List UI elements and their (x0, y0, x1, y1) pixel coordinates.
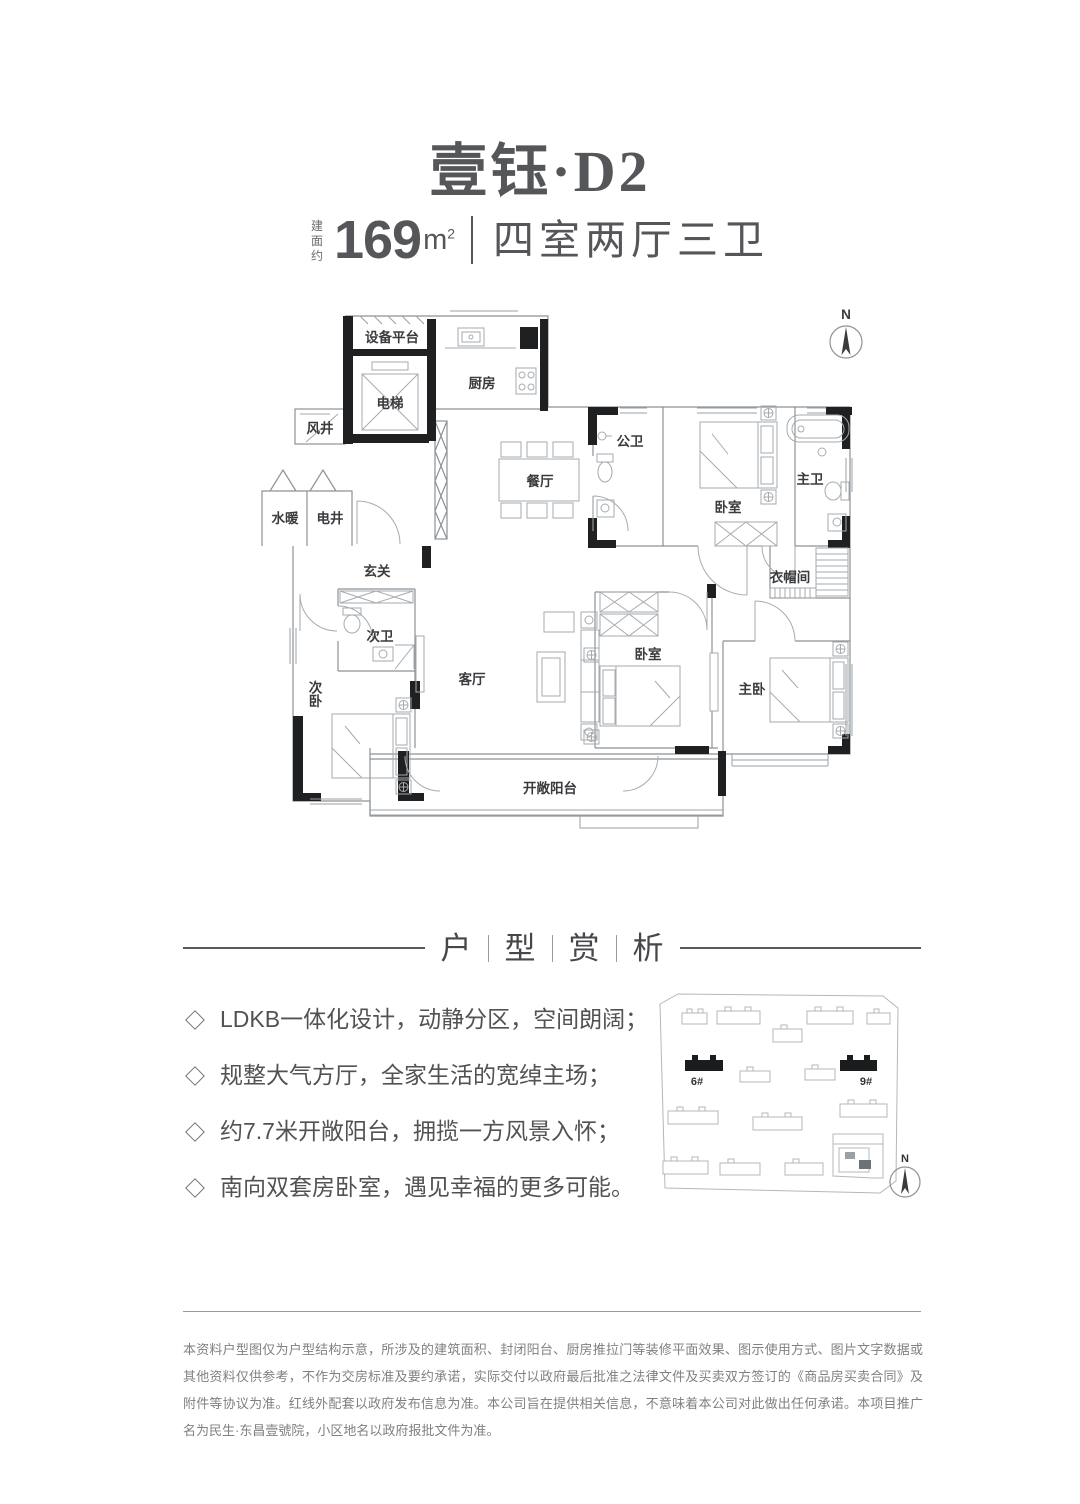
subtitle-divider (471, 216, 473, 264)
heading-char-3: 赏 (569, 933, 600, 964)
feature-list: LDKB一体化设计，动静分区，空间朗阔； 规整大气方厅，全家生活的宽绰主场； 约… (186, 1006, 672, 1230)
footer-divider (183, 1311, 921, 1312)
diamond-icon (185, 1010, 205, 1030)
building-9-label: 9# (860, 1076, 872, 1088)
feature-text: 约7.7米开敞阳台，拥揽一方风景入怀； (220, 1118, 620, 1145)
disclaimer-text: 本资料户型图仅为户型结构示意，所涉及的建筑面积、封闭阳台、厨房推拉门等装修平面效… (183, 1336, 923, 1444)
heading-separator (616, 935, 617, 962)
north-arrow-icon: N (830, 307, 862, 358)
room-label-public-bathroom: 公卫 (617, 434, 645, 449)
list-item: 约7.7米开敞阳台，拥揽一方风景入怀； (186, 1118, 672, 1145)
brochure-page: 壹钰·D2 建面约 169 m2 四室两厅三卫 (0, 0, 1080, 1504)
diamond-icon (185, 1122, 205, 1142)
room-label-wind-shaft: 风井 (307, 420, 334, 436)
heading-char-1: 户 (441, 933, 472, 964)
room-label-water-heating: 水暖 (272, 510, 299, 526)
room-label-open-balcony: 开敞阳台 (523, 780, 577, 796)
heading-separator (552, 935, 553, 962)
room-label-bedroom-south: 卧室 (635, 646, 663, 662)
area-prefix-label: 建面约 (311, 219, 325, 264)
area-subtitle: 建面约 169 m2 四室两厅三卫 (0, 208, 1080, 272)
room-label-second-bathroom: 次卫 (367, 628, 394, 644)
heading-char-2: 型 (505, 933, 536, 964)
sitemap-highlighted-buildings (685, 1055, 877, 1071)
heading-line-left (183, 947, 425, 949)
room-label-master-bathroom: 主卫 (797, 471, 825, 487)
north-label: N (841, 307, 851, 322)
heading-char-4: 析 (633, 933, 664, 964)
heading-separator (488, 935, 489, 962)
sitemap-school-block (833, 1134, 883, 1178)
room-label-dining: 餐厅 (526, 473, 555, 489)
floorplan-svg: 设备平台 电梯 厨房 风井 水暖 电井 餐厅 公卫 卧室 主卫 玄关 衣帽间 次… (250, 296, 910, 866)
room-label-electric-shaft: 电井 (317, 510, 344, 526)
room-label-kitchen: 厨房 (469, 375, 496, 391)
area-unit-m: m (423, 224, 447, 256)
diamond-icon (185, 1066, 205, 1086)
diamond-icon (185, 1178, 205, 1198)
feature-text: LDKB一体化设计，动静分区，空间朗阔； (220, 1006, 648, 1033)
list-item: LDKB一体化设计，动静分区，空间朗阔； (186, 1006, 672, 1033)
sitemap: 6# 9# N (655, 986, 955, 1214)
room-label-entry-hall: 玄关 (364, 563, 391, 579)
area-unit-sup: 2 (447, 225, 455, 241)
page-title: 壹钰·D2 (0, 124, 1080, 208)
floorplan: 设备平台 电梯 厨房 风井 水暖 电井 餐厅 公卫 卧室 主卫 玄关 衣帽间 次… (250, 296, 910, 866)
area-value: 169 (334, 213, 421, 267)
sitemap-buildings (663, 1007, 890, 1175)
room-label-equipment-platform: 设备平台 (365, 329, 419, 345)
feature-text: 南向双套房卧室，遇见幸福的更多可能。 (220, 1174, 634, 1201)
sitemap-north-label: N (901, 1153, 909, 1165)
area-unit: m2 (423, 226, 455, 255)
sitemap-svg: 6# 9# N (655, 986, 955, 1214)
sitemap-north-icon: N (890, 1153, 920, 1197)
layout-type: 四室两厅三卫 (493, 220, 769, 261)
room-label-second-bedroom: 次卧 (307, 679, 323, 709)
heading-line-right (680, 947, 922, 949)
room-label-master-bedroom: 主卧 (739, 681, 767, 697)
section-heading: 户 型 赏 析 (183, 928, 921, 968)
room-label-bedroom-north: 卧室 (715, 499, 743, 515)
list-item: 规整大气方厅，全家生活的宽绰主场； (186, 1062, 672, 1089)
feature-text: 规整大气方厅，全家生活的宽绰主场； (220, 1062, 611, 1089)
building-6-label: 6# (691, 1076, 703, 1088)
room-label-elevator: 电梯 (377, 395, 404, 411)
room-label-cloakroom: 衣帽间 (770, 569, 811, 585)
list-item: 南向双套房卧室，遇见幸福的更多可能。 (186, 1174, 672, 1201)
room-label-living-room: 客厅 (458, 671, 486, 687)
